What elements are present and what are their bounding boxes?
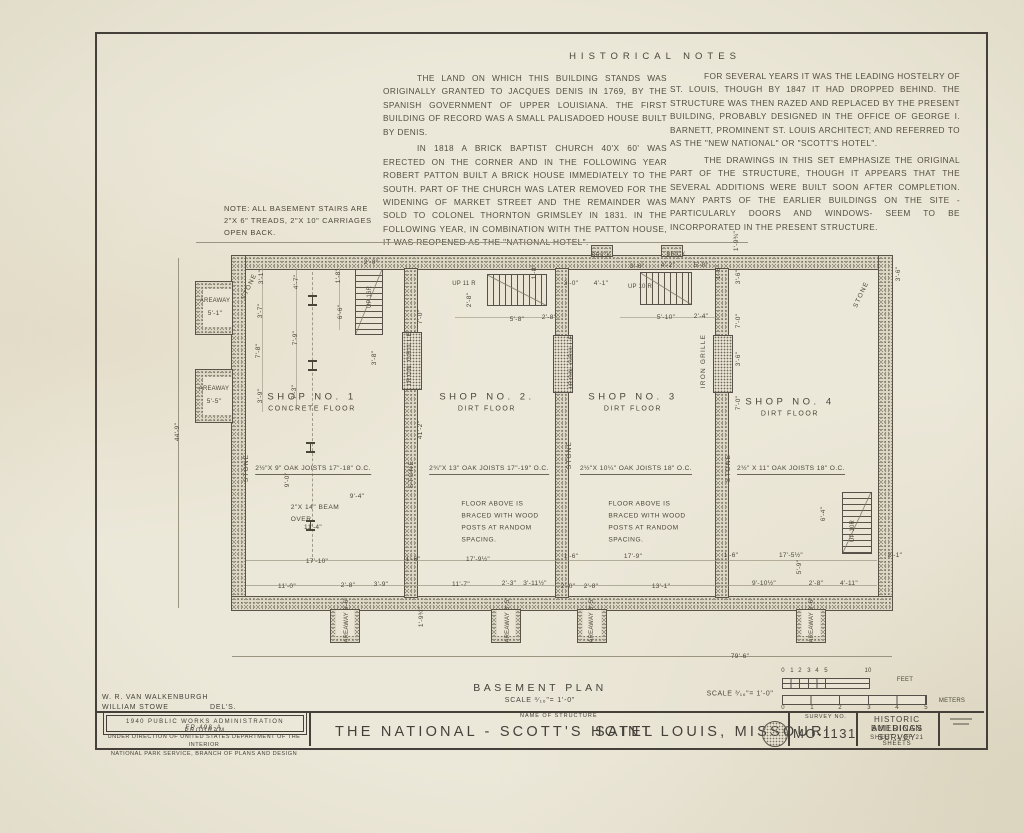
plan-label: UP 10R <box>850 520 856 542</box>
dimension-label: 11'-7" <box>452 582 470 589</box>
wall-interior-2 <box>556 269 568 597</box>
property-line <box>196 242 748 243</box>
historical-notes-heading: HISTORICAL NOTES <box>560 51 750 62</box>
joist-note: 2¾"X 13" OAK JOISTS 17"-19" O.C. <box>429 465 549 475</box>
dimension-label: 1'-8" <box>716 265 723 279</box>
dimension-label: 3'-8" <box>372 351 379 365</box>
notes-paragraph: IN 1818 A BRICK BAPTIST CHURCH 40'X 60' … <box>383 142 667 250</box>
dimension-label: 3'-9" <box>374 582 388 589</box>
dimension-label: 5'-0" <box>694 263 708 270</box>
plan-label: AREAWAY <box>199 386 230 392</box>
titleblock-divider <box>309 711 311 746</box>
plan-label: METERS <box>939 698 965 704</box>
dimension-label: 2'-8" <box>542 315 556 322</box>
dimension-label: 2'-4" <box>694 314 708 321</box>
dimension-label: 3'-9" <box>258 389 265 403</box>
plan-label: AREAWAY 3'-5" <box>589 597 595 642</box>
dimension-label: 3'-11½" <box>523 581 547 588</box>
wood-post <box>308 295 317 306</box>
dimension-label: 13'-1" <box>652 584 670 591</box>
notes-paragraph: THE DRAWINGS IN THIS SET EMPHASIZE THE O… <box>670 154 960 235</box>
dimension-label: 1'-6" <box>724 553 738 560</box>
plan-label: 4 <box>815 668 819 674</box>
shop-label: SHOP NO. 4 DIRT FLOOR <box>745 397 834 418</box>
dimension-label: 2'-3" <box>502 581 516 588</box>
plan-label: AREAWAY 3'-6" <box>344 597 350 642</box>
notes-paragraph: FOR SEVERAL YEARS IT WAS THE LEADING HOS… <box>670 70 960 151</box>
dimension-label: 2'-1" <box>888 553 902 560</box>
floor-above-note: FLOOR ABOVE IS BRACED WITH WOOD POSTS AT… <box>461 498 538 545</box>
dimension-label: 3'-6" <box>736 352 743 366</box>
dimension-label: 7'-0" <box>736 314 743 328</box>
joist-note: 2½"X 9" OAK JOISTS 17"-18" O.C. <box>255 465 371 475</box>
plan-label: 5 <box>824 668 828 674</box>
plan-label: STONE <box>244 454 251 482</box>
library-stamp-text <box>953 723 969 725</box>
shop-label: SHOP NO. 2. DIRT FLOOR <box>439 392 534 413</box>
stair-up-10r-shop4 <box>842 492 872 554</box>
dimension-label: 2'-8" <box>809 581 823 588</box>
wood-post <box>308 360 317 371</box>
shop-label: SHOP NO. 1 CONCRETE FLOOR <box>267 392 356 413</box>
wall-interior-1 <box>405 269 417 597</box>
titleblock-divider <box>938 711 940 746</box>
survey-number: MO-1131 <box>793 726 857 741</box>
dimension-label: 4'-7" <box>294 275 301 289</box>
plan-title-text: BASEMENT PLAN <box>473 682 606 694</box>
shop-name: SHOP NO. 4 <box>745 397 834 408</box>
plan-label: 3 <box>807 668 811 674</box>
notes-column-left: THE LAND ON WHICH THIS BUILDING STANDS W… <box>383 72 667 253</box>
areaway-west-1-floor <box>203 289 232 327</box>
name-of-structure-label: NAME OF STRUCTURE <box>520 713 598 719</box>
dimension-label: 5'-5" <box>207 399 221 406</box>
plan-label: UP 16R <box>367 286 373 308</box>
dimension-label: 17'-9½" <box>466 557 490 564</box>
plan-label: BRICK <box>666 252 685 258</box>
shop-floor-type: DIRT FLOOR <box>745 411 834 418</box>
dimension-label: 4'-2" <box>661 263 675 270</box>
dimension-label: 2'-8" <box>467 293 474 307</box>
plan-label: STONE <box>567 441 574 469</box>
dimension-label: 79'-6" <box>731 654 749 661</box>
dimension-label: 9'-10½" <box>752 581 776 588</box>
plan-title: BASEMENT PLAN SCALE ³∕₁₆"= 1'-0" <box>473 682 606 704</box>
survey-no-label: SURVEY NO. <box>805 714 847 720</box>
dimension-label: 2'-0" <box>364 260 378 267</box>
dimension-label: 3'-0" <box>564 281 578 288</box>
graphic-scale-feet <box>782 678 870 689</box>
dimension-label: 1'-8" <box>532 265 539 279</box>
beam-note: 2"X 14" BEAM OVER. <box>291 502 339 526</box>
dimension-label: 2'-8" <box>584 584 598 591</box>
joist-note: 2½"X 10¼" OAK JOISTS 18" O.C. <box>580 465 692 475</box>
dimension-label: 3'-1" <box>259 270 266 284</box>
plan-label: AREAWAY <box>200 298 231 304</box>
wood-post <box>306 442 315 453</box>
pwa-program-number: FP 498-A <box>106 725 302 731</box>
plan-label: IRON GRILLE <box>407 331 414 385</box>
shop-name: SHOP NO. 2. <box>439 392 534 403</box>
plan-label: 10 <box>864 668 871 674</box>
shop-label: SHOP NO. 3 DIRT FLOOR <box>588 392 677 413</box>
shop-floor-type: DIRT FLOOR <box>588 406 677 413</box>
plan-label: IRON GRILLE <box>569 334 576 388</box>
wall-north <box>232 256 892 269</box>
dimension-label: 5'-10" <box>657 315 675 322</box>
stair-note: NOTE: ALL BASEMENT STAIRS ARE 2"X 6" TRE… <box>224 203 372 239</box>
dimension-label: 1'-6" <box>564 554 578 561</box>
dim-line <box>232 656 892 657</box>
dimension-label: 41'-2" <box>418 421 425 439</box>
joist-note: 2½" X 11" OAK JOISTS 18" O.C. <box>737 465 845 475</box>
dimension-label: 3'-6" <box>630 264 644 271</box>
dimension-label: 3'-7" <box>258 304 265 318</box>
dimension-label: 11'-0" <box>278 584 296 591</box>
plan-scale-text: SCALE ³∕₁₆"= 1'-0" <box>473 697 606 704</box>
delineator-name-2: WILLIAM STOWE <box>102 704 169 711</box>
dimension-label: 4'-11" <box>840 581 858 588</box>
drawing-sheet: HISTORICAL NOTES THE LAND ON WHICH THIS … <box>0 0 1024 833</box>
habs-sheet-line: SHEET 1 OF 21 SHEETS <box>857 735 937 747</box>
areaway-west-2-floor <box>203 377 232 415</box>
iron-grille <box>713 335 733 393</box>
shop-floor-type: CONCRETE FLOOR <box>267 406 356 413</box>
library-stamp-text <box>950 718 972 720</box>
dimension-label: 1'-9¾" <box>419 607 426 627</box>
plan-label: 1 <box>790 668 794 674</box>
plan-label: STONE <box>409 460 416 488</box>
delineator-name-1: W. R. VAN WALKENBURGH <box>102 694 208 701</box>
dimension-label: 7'-9" <box>293 331 300 345</box>
plan-label: UP 10 R <box>628 284 652 290</box>
dimension-label: 4'-1" <box>594 281 608 288</box>
wall-south <box>232 597 892 610</box>
dimension-label: 17'-5½" <box>779 553 803 560</box>
dimension-label: 2'-0" <box>561 584 575 591</box>
dimension-label: 44'-9" <box>175 423 182 441</box>
plan-label: SCALE ³∕₁₆"= 1'-0" <box>707 691 774 698</box>
dimension-label: 3'-6" <box>736 270 743 284</box>
dimension-label: 7'-0" <box>418 310 425 324</box>
plan-label: AREAWAY 3'-6" <box>809 597 815 642</box>
graphic-scale-meters <box>782 695 927 705</box>
plan-label: STONE <box>726 454 733 482</box>
dimension-label: 1'-8" <box>336 269 343 283</box>
dimension-label: 9'-4" <box>350 494 364 501</box>
wall-interior-3 <box>716 269 728 597</box>
interior-department-note: UNDER DIRECTION OF UNITED STATES DEPARTM… <box>100 733 308 758</box>
plan-label: AREAWAY 3'-5" <box>505 597 511 642</box>
delineator-suffix: DEL'S. <box>210 704 236 711</box>
dimension-label: 5'-8" <box>510 317 524 324</box>
dimension-label: 17'-10" <box>306 559 328 566</box>
floor-above-note: FLOOR ABOVE IS BRACED WITH WOOD POSTS AT… <box>608 498 685 545</box>
dimension-label: 1'-6" <box>406 557 420 564</box>
plan-label: IRON GRILLE <box>701 334 708 388</box>
dim-line <box>246 560 877 561</box>
dimension-label: 7'-8" <box>256 344 263 358</box>
dimension-label: 1'-9¾" <box>734 231 741 251</box>
notes-column-right: FOR SEVERAL YEARS IT WAS THE LEADING HOS… <box>670 70 960 237</box>
dimension-label: 3'-6" <box>896 267 903 281</box>
plan-label: UP 11 R <box>452 281 476 287</box>
shop-floor-type: DIRT FLOOR <box>439 406 534 413</box>
notes-paragraph: THE LAND ON WHICH THIS BUILDING STANDS W… <box>383 72 667 139</box>
round-stamp <box>762 721 788 747</box>
plan-label: BRICK <box>591 253 610 259</box>
dimension-label: 6'-6" <box>338 305 345 319</box>
dimension-label: 5'-9" <box>797 560 804 574</box>
plan-label: 2 <box>798 668 802 674</box>
dimension-label: 6'-4" <box>821 507 828 521</box>
plan-label: 0 <box>781 668 785 674</box>
plan-label: FEET <box>897 677 913 683</box>
dimension-label: 7'-0" <box>736 396 743 410</box>
shop-name: SHOP NO. 3 <box>588 392 677 403</box>
dimension-label: 5'-1" <box>208 311 222 318</box>
dimension-label: 2'-8" <box>341 583 355 590</box>
wall-west <box>232 256 245 610</box>
dimension-label: 17'-9" <box>624 554 642 561</box>
shop-name: SHOP NO. 1 <box>267 392 356 403</box>
